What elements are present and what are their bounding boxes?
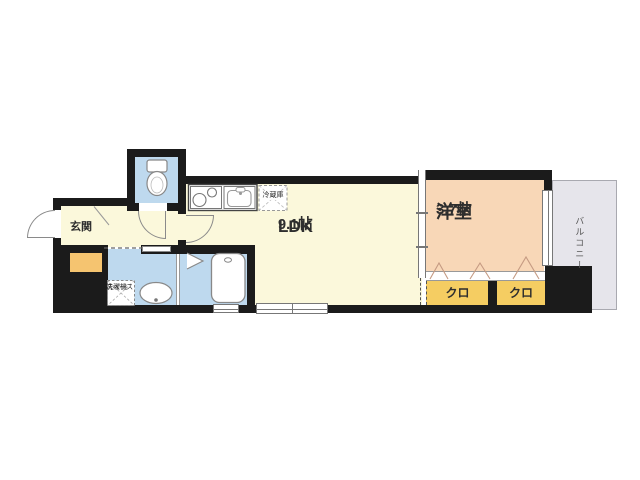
- washroom-pocket-door: [142, 246, 171, 252]
- wall-top-bedroom: [424, 170, 552, 180]
- wall-between-closets: [488, 281, 497, 305]
- sliding-door-tick: [416, 212, 428, 214]
- closet-right-text: クロ: [509, 286, 533, 300]
- room-ldk-lower: [255, 245, 421, 305]
- wall-hall-ldk-lower: [178, 240, 186, 253]
- balcony-label-text: バルコニー: [574, 216, 584, 271]
- ldk-window: [256, 303, 328, 314]
- washroom-bath-divider: [176, 249, 180, 307]
- room-toilet: [135, 157, 178, 203]
- bath-window: [213, 304, 239, 313]
- room-washroom: [108, 249, 176, 307]
- wall-top-ldk: [178, 176, 418, 184]
- closet-left-label: クロ: [427, 286, 488, 301]
- refrigerator-label-text: 冷蔵庫: [263, 192, 284, 199]
- toilet-door-opening: [139, 203, 167, 211]
- refrigerator-label: 冷蔵庫: [260, 192, 286, 200]
- wall-top-hall: [53, 198, 135, 206]
- sliding-door-tick: [416, 246, 428, 248]
- bedroom-size: 3.7帖: [436, 201, 472, 220]
- bedroom-window: [542, 190, 553, 266]
- balcony-label: バルコニー: [573, 208, 584, 278]
- room-bedroom: [426, 180, 544, 272]
- ldk-bedroom-sliding-door: [418, 170, 426, 278]
- wall-bottom-right-block: [545, 266, 592, 313]
- closet-left-text: クロ: [445, 286, 469, 300]
- wall-hall-ldk-upper: [178, 184, 186, 214]
- floorplan: 玄関 LDK 9.1帖 洋室 3.7帖 クロ クロ バルコニー 冷蔵庫 洗濯機 …: [0, 0, 640, 480]
- entrance-label: 玄関: [62, 221, 100, 235]
- entrance-door-arc: [27, 210, 55, 238]
- wall-bath-right: [247, 245, 255, 307]
- ldk-closet-dashed-boundary: [420, 278, 423, 305]
- washer-label-line2: スペース: [106, 284, 133, 292]
- ldk-size: 9.1帖: [278, 216, 313, 234]
- room-bathroom: [180, 249, 247, 307]
- entrance-step-box: [70, 253, 102, 272]
- closet-right-label: クロ: [497, 286, 545, 301]
- closet-door-track: [426, 271, 545, 281]
- entrance-label-text: 玄関: [70, 221, 92, 233]
